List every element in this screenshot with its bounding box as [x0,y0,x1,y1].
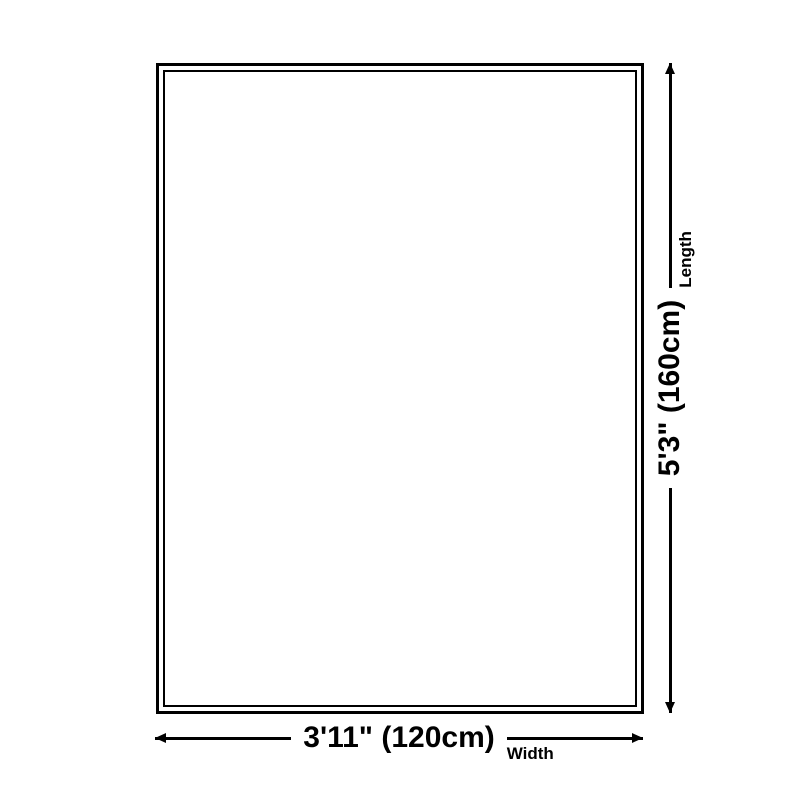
width-value: 3'11" (120cm) [303,723,494,753]
size-diagram: 3'11" (120cm) Width 5'3" (160cm) Length [0,0,800,800]
arrowhead-down-icon [665,702,675,713]
length-arrow-start-segment [669,488,672,713]
width-arrow-end-segment: Width [507,737,643,740]
width-arrow-start-segment [155,737,291,740]
arrowhead-left-icon [155,733,166,743]
product-rectangle-inner-border [163,70,637,707]
arrowhead-up-icon [665,63,675,74]
length-axis-label: Length [677,231,694,288]
length-arrow-end-segment: Length [669,63,672,288]
width-axis-label: Width [507,745,554,762]
arrowhead-right-icon [632,733,643,743]
length-dimension: 5'3" (160cm) Length [651,63,689,713]
length-value: 5'3" (160cm) [655,300,685,476]
product-rectangle-outer-border [156,63,644,714]
width-dimension: 3'11" (120cm) Width [155,719,643,757]
